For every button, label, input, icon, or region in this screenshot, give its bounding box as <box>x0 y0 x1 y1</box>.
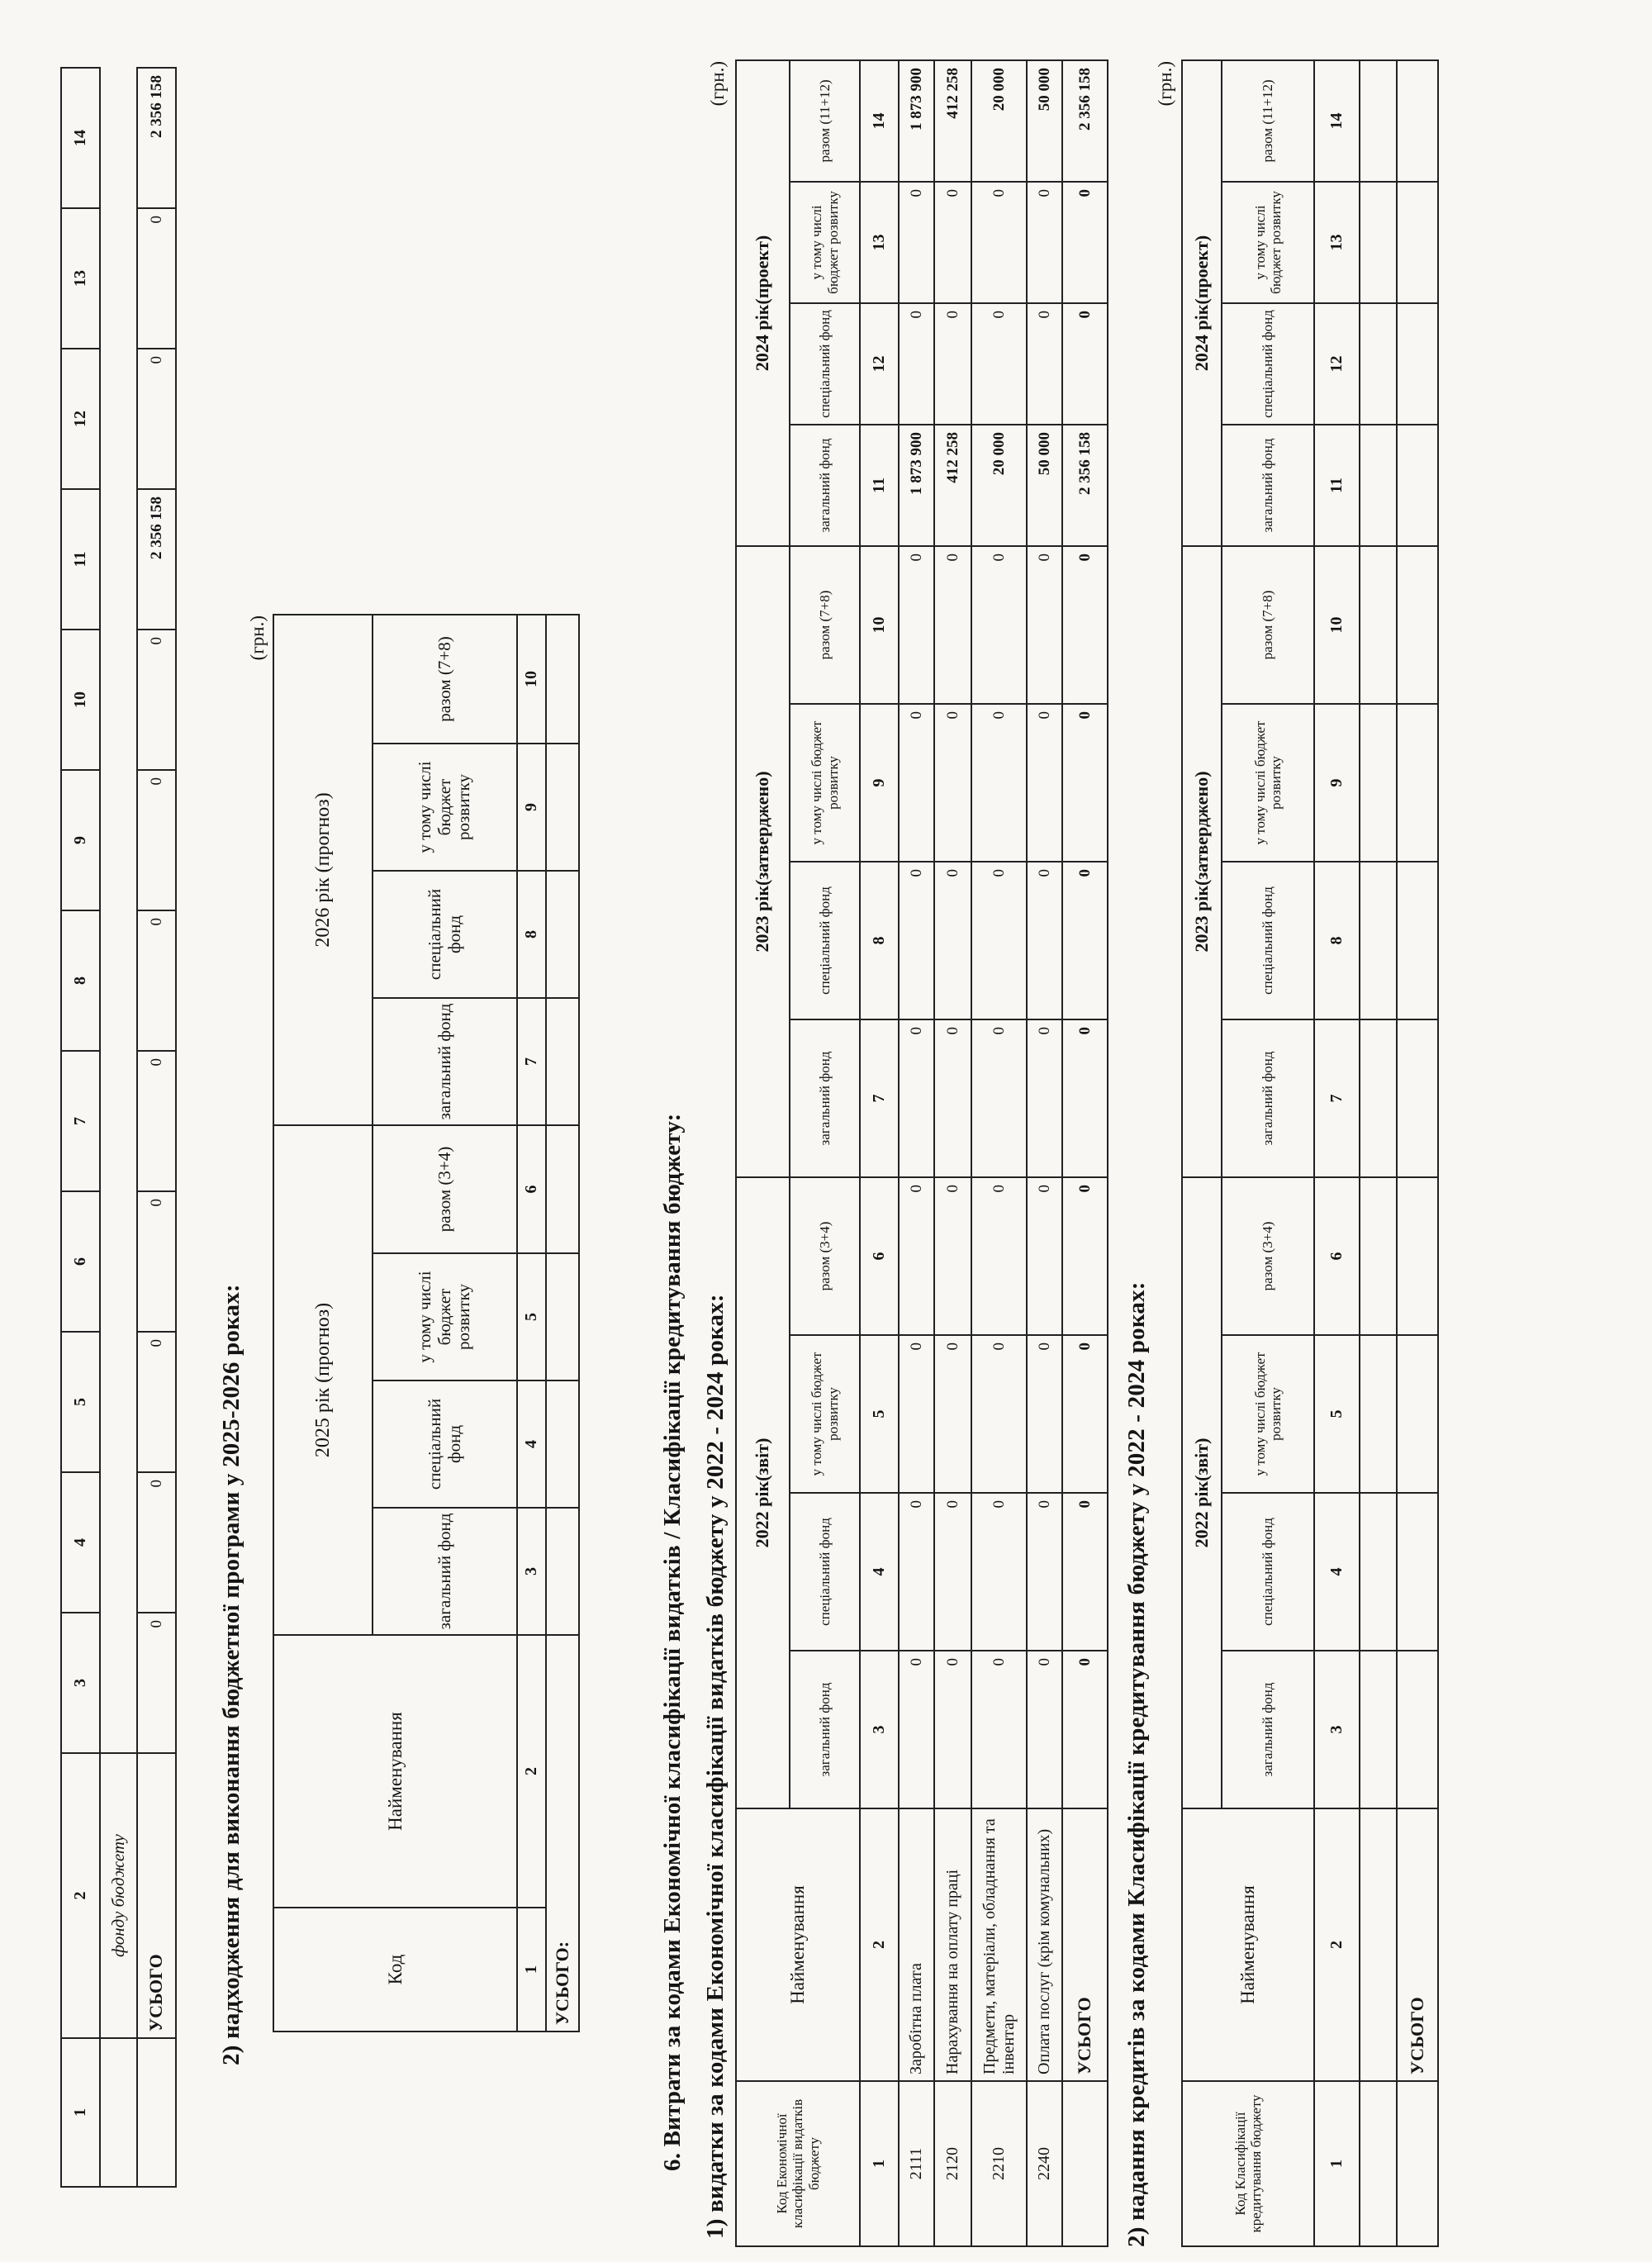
expenses-classification-table: Код Економічної класифікації видатків бю… <box>735 59 1108 2247</box>
table-cell: загальний фонд <box>790 425 860 546</box>
table-cell <box>100 1191 137 1332</box>
table-cell <box>100 1472 137 1613</box>
table-cell: 0 <box>971 182 1027 303</box>
table-cell <box>1397 1335 1438 1493</box>
table-cell: 7 <box>61 1051 100 1191</box>
table-cell <box>100 770 137 910</box>
table-cell <box>546 615 579 744</box>
table-cell: 10 <box>860 546 899 704</box>
table-cell: 2024 рік(проект) <box>1182 60 1222 546</box>
table-cell: 5 <box>517 1253 546 1380</box>
table-cell: 0 <box>934 1651 971 1808</box>
table-cell: 8 <box>517 871 546 998</box>
table-cell: 0 <box>899 303 934 425</box>
table-cell: разом (7+8) <box>790 546 860 704</box>
table-cell: 2026 рік (прогноз) <box>273 615 373 1125</box>
table-cell <box>1360 704 1397 862</box>
table-cell: загальний фонд <box>1222 1019 1314 1177</box>
table-cell: Найменування <box>273 1635 517 1908</box>
table-cell: 1 873 900 <box>899 425 934 546</box>
table-cell: спеціальний фонд <box>1222 1493 1314 1651</box>
table-cell: 0 <box>1027 704 1062 862</box>
table-cell: 2 <box>1314 1808 1360 2081</box>
table-cell: 3 <box>1314 1651 1360 1808</box>
table-cell: 0 <box>971 1177 1027 1335</box>
table-cell: 5 <box>1314 1335 1360 1493</box>
table-cell: 1 873 900 <box>899 60 934 182</box>
table-cell: 0 <box>971 862 1027 1019</box>
table-cell: 0 <box>899 1493 934 1651</box>
table-cell: 4 <box>61 1472 100 1613</box>
table-cell: 5 <box>860 1335 899 1493</box>
table-cell: 12 <box>860 303 899 425</box>
table-cell: 0 <box>1027 1651 1062 1808</box>
table-cell: 0 <box>137 1332 176 1472</box>
table-cell: 2 356 158 <box>1062 425 1108 546</box>
table-cell: 0 <box>934 1177 971 1335</box>
table-cell: 20 000 <box>971 60 1027 182</box>
table-cell: 11 <box>61 489 100 630</box>
table-cell: 20 000 <box>971 425 1027 546</box>
table-cell: у тому числі бюджет розвитку <box>1222 1335 1314 1493</box>
table-cell: 0 <box>137 910 176 1051</box>
table-cell: 1 <box>1314 2081 1360 2246</box>
table-cell: 2023 рік(затверджено) <box>1182 546 1222 1177</box>
table-cell <box>1397 862 1438 1019</box>
table-cell: 14 <box>860 60 899 182</box>
table-cell: 9 <box>61 770 100 910</box>
table-cell: загальний фонд <box>790 1651 860 1808</box>
table-cell: у тому числі бюджет розвитку <box>1222 182 1314 303</box>
table-cell: 0 <box>1062 1651 1108 1808</box>
table-cell: 412 258 <box>934 60 971 182</box>
table-cell: загальний фонд <box>373 1508 517 1635</box>
table-cell: 3 <box>61 1613 100 1753</box>
table-cell <box>1397 1493 1438 1651</box>
table-cell: 2022 рік(звіт) <box>736 1177 790 1808</box>
table-cell: 9 <box>860 704 899 862</box>
table-cell <box>546 1253 579 1380</box>
table-cell <box>1360 1493 1397 1651</box>
table-cell: спеціальний фонд <box>1222 303 1314 425</box>
table-cell: у тому числі бюджет розвитку <box>373 744 517 871</box>
table-cell: УСЬОГО <box>137 1753 176 2038</box>
table-cell: 0 <box>1062 182 1108 303</box>
table-cell: 12 <box>1314 303 1360 425</box>
scanned-budget-document-page: 1234567891011121314фонду бюджетуУСЬОГО00… <box>0 0 1652 2262</box>
table-cell: фонду бюджету <box>100 1753 137 2038</box>
table-cell <box>546 998 579 1125</box>
table-cell: 0 <box>1027 1019 1062 1177</box>
table-cell: 2 <box>860 1808 899 2081</box>
table-cell: 0 <box>1062 1335 1108 1493</box>
forecast-receipts-table-grid: КодНайменування2025 рік (прогноз)2026 рі… <box>273 614 580 2032</box>
table-cell: 0 <box>1062 1177 1108 1335</box>
table-cell <box>1397 303 1438 425</box>
table-cell <box>1397 2081 1438 2246</box>
table-cell: разом (3+4) <box>373 1125 517 1253</box>
table-cell <box>100 1332 137 1472</box>
table-cell: 0 <box>1027 546 1062 704</box>
currency-unit-label: (грн.) <box>707 61 729 309</box>
table-cell: Найменування <box>1182 1808 1314 2081</box>
table-cell: 0 <box>971 1019 1027 1177</box>
table-cell: 12 <box>61 349 100 489</box>
table-cell: 0 <box>934 704 971 862</box>
table-cell: спеціальний фонд <box>790 1493 860 1651</box>
table-cell: 0 <box>1027 862 1062 1019</box>
table-cell: 2111 <box>899 2081 934 2246</box>
table-cell <box>137 2038 176 2187</box>
table-cell: спеціальний фонд <box>1222 862 1314 1019</box>
table-cell <box>1397 1177 1438 1335</box>
table-cell: 0 <box>934 1335 971 1493</box>
table-cell: 6 <box>61 1191 100 1332</box>
table-cell: 10 <box>1314 546 1360 704</box>
table-cell <box>1397 182 1438 303</box>
table-cell: загальний фонд <box>1222 1651 1314 1808</box>
credits-classification-table-grid: Код Класифікації кредитування бюджетуНай… <box>1181 59 1439 2247</box>
table-cell: 2 356 158 <box>137 489 176 630</box>
landscape-canvas: 1234567891011121314фонду бюджетуУСЬОГО00… <box>0 0 1652 2262</box>
table-cell: УСЬОГО <box>1062 1808 1108 2081</box>
table-cell: спеціальний фонд <box>373 1380 517 1508</box>
table-cell: 0 <box>899 1177 934 1335</box>
table-cell: спеціальний фонд <box>373 871 517 998</box>
table-cell: 0 <box>1062 546 1108 704</box>
table-cell <box>1360 862 1397 1019</box>
fragment-totals-table: 1234567891011121314фонду бюджетуУСЬОГО00… <box>60 67 177 2188</box>
table-cell: 6 <box>517 1125 546 1253</box>
table-cell: 14 <box>61 68 100 208</box>
table-cell: 2 <box>517 1635 546 1908</box>
table-cell: 2240 <box>1027 2081 1062 2246</box>
table-cell: 0 <box>137 630 176 770</box>
table-cell: 7 <box>1314 1019 1360 1177</box>
table-cell: 8 <box>1314 862 1360 1019</box>
table-cell: у тому числі бюджет розвитку <box>790 704 860 862</box>
table-cell: 11 <box>1314 425 1360 546</box>
table-cell <box>1360 1808 1397 2081</box>
table-cell: 4 <box>517 1380 546 1508</box>
table-cell: у тому числі бюджет розвитку <box>373 1253 517 1380</box>
table-cell: 412 258 <box>934 425 971 546</box>
table-cell <box>1397 60 1438 182</box>
table-cell: 0 <box>899 862 934 1019</box>
fragment-totals-table-grid: 1234567891011121314фонду бюджетуУСЬОГО00… <box>60 67 177 2188</box>
table-cell: у тому числі бюджет розвитку <box>790 1335 860 1493</box>
currency-unit-label: (грн.) <box>247 615 268 863</box>
table-cell: 0 <box>934 303 971 425</box>
table-cell: 0 <box>1062 1493 1108 1651</box>
table-cell: Код <box>273 1908 517 2032</box>
table-cell: 0 <box>1062 1019 1108 1177</box>
table-cell: Нарахування на оплату праці <box>934 1808 971 2081</box>
table-cell: 2210 <box>971 2081 1027 2246</box>
table-cell <box>1062 2081 1108 2246</box>
table-cell: 2 356 158 <box>137 68 176 208</box>
heading-receipts-2025-2026: 2) надходження для виконання бюджетної п… <box>218 1284 245 2065</box>
table-cell: 1 <box>61 2038 100 2187</box>
table-cell: 3 <box>860 1651 899 1808</box>
table-cell: 10 <box>517 615 546 744</box>
table-cell <box>100 1051 137 1191</box>
table-cell: 10 <box>61 630 100 770</box>
table-cell: Заробітна плата <box>899 1808 934 2081</box>
table-cell: 0 <box>137 349 176 489</box>
table-cell: 0 <box>899 704 934 862</box>
table-cell: УСЬОГО: <box>546 1635 579 2032</box>
table-cell: 13 <box>860 182 899 303</box>
table-cell: у тому числі бюджет розвитку <box>1222 704 1314 862</box>
table-cell: спеціальний фонд <box>790 862 860 1019</box>
table-cell: 0 <box>1027 1335 1062 1493</box>
table-cell: 0 <box>137 1051 176 1191</box>
table-cell <box>1360 546 1397 704</box>
heading-credits-subsection: 2) надання кредитів за кодами Класифікац… <box>1123 1281 1151 2247</box>
table-cell: 0 <box>1027 1177 1062 1335</box>
table-cell: 0 <box>137 770 176 910</box>
table-cell: 8 <box>61 910 100 1051</box>
table-cell <box>100 630 137 770</box>
table-cell: загальний фонд <box>1222 425 1314 546</box>
table-cell: 11 <box>860 425 899 546</box>
table-cell: 0 <box>934 1019 971 1177</box>
table-cell: 2120 <box>934 2081 971 2246</box>
table-cell: 0 <box>137 1613 176 1753</box>
table-cell: 0 <box>899 546 934 704</box>
table-cell: 0 <box>1062 303 1108 425</box>
table-cell: 0 <box>1062 862 1108 1019</box>
table-cell <box>546 1508 579 1635</box>
forecast-receipts-table: КодНайменування2025 рік (прогноз)2026 рі… <box>273 614 580 2032</box>
table-cell: УСЬОГО <box>1397 1808 1438 2081</box>
table-cell <box>100 489 137 630</box>
table-cell: 6 <box>1314 1177 1360 1335</box>
table-cell <box>1397 1651 1438 1808</box>
table-cell: 0 <box>934 546 971 704</box>
table-cell <box>546 1380 579 1508</box>
table-cell: 3 <box>517 1508 546 1635</box>
table-cell <box>1360 1335 1397 1493</box>
table-cell <box>546 1125 579 1253</box>
table-cell: 0 <box>934 862 971 1019</box>
table-cell: 0 <box>934 1493 971 1651</box>
table-cell: 0 <box>1027 1493 1062 1651</box>
table-cell <box>1360 182 1397 303</box>
table-cell: 0 <box>899 1335 934 1493</box>
heading-expenses-subsection: 1) видатки за кодами Економічної класифі… <box>702 1294 729 2239</box>
table-cell <box>1360 1651 1397 1808</box>
table-cell: 0 <box>899 182 934 303</box>
table-cell: Код Економічної класифікації видатків бю… <box>736 2081 860 2246</box>
table-cell: 0 <box>1027 182 1062 303</box>
table-cell: 4 <box>1314 1493 1360 1651</box>
table-cell: 2023 рік(затверджено) <box>736 546 790 1177</box>
table-cell: разом (7+8) <box>1222 546 1314 704</box>
table-cell <box>100 2038 137 2187</box>
table-cell: 0 <box>971 1335 1027 1493</box>
table-cell <box>1397 546 1438 704</box>
table-cell: загальний фонд <box>373 998 517 1125</box>
table-cell <box>1360 1019 1397 1177</box>
table-cell <box>1360 2081 1397 2246</box>
table-cell: 0 <box>899 1019 934 1177</box>
table-cell: 0 <box>934 182 971 303</box>
table-cell <box>1360 303 1397 425</box>
table-cell: 8 <box>860 862 899 1019</box>
table-cell: Найменування <box>736 1808 860 2081</box>
table-cell <box>1397 1019 1438 1177</box>
table-cell: 1 <box>860 2081 899 2246</box>
table-cell <box>100 910 137 1051</box>
table-cell: разом (7+8) <box>373 615 517 744</box>
table-cell: у тому числі бюджет розвитку <box>790 182 860 303</box>
table-cell: 0 <box>971 1651 1027 1808</box>
table-cell: 7 <box>517 998 546 1125</box>
table-cell: разом (3+4) <box>1222 1177 1314 1335</box>
table-cell: 0 <box>137 208 176 349</box>
table-cell: Оплата послуг (крім комунальних) <box>1027 1808 1062 2081</box>
credits-classification-table: Код Класифікації кредитування бюджетуНай… <box>1181 59 1439 2247</box>
table-cell: 0 <box>1062 704 1108 862</box>
expenses-classification-table-grid: Код Економічної класифікації видатків бю… <box>735 59 1108 2247</box>
table-cell: 2022 рік(звіт) <box>1182 1177 1222 1808</box>
table-cell: 2 356 158 <box>1062 60 1108 182</box>
table-cell: 6 <box>860 1177 899 1335</box>
table-cell <box>546 744 579 871</box>
table-cell: 50 000 <box>1027 425 1062 546</box>
table-cell <box>1360 60 1397 182</box>
table-cell: 13 <box>1314 182 1360 303</box>
table-cell <box>1397 704 1438 862</box>
table-cell: 9 <box>1314 704 1360 862</box>
table-cell: 2024 рік(проект) <box>736 60 790 546</box>
table-cell: 0 <box>971 546 1027 704</box>
table-cell <box>1360 425 1397 546</box>
table-cell <box>100 68 137 208</box>
table-cell: 0 <box>137 1191 176 1332</box>
table-cell: 4 <box>860 1493 899 1651</box>
table-cell: 7 <box>860 1019 899 1177</box>
table-cell <box>100 208 137 349</box>
table-cell: 2 <box>61 1753 100 2038</box>
table-cell: 5 <box>61 1332 100 1472</box>
table-cell: 0 <box>971 303 1027 425</box>
table-cell: 0 <box>1027 303 1062 425</box>
table-cell: 0 <box>137 1472 176 1613</box>
currency-unit-label: (грн.) <box>1155 61 1176 309</box>
table-cell: 1 <box>517 1908 546 2032</box>
table-cell: Предмети, матеріали, обладнання та інвен… <box>971 1808 1027 2081</box>
table-cell <box>100 1613 137 1753</box>
table-cell: 50 000 <box>1027 60 1062 182</box>
table-cell <box>546 871 579 998</box>
table-cell: разом (11+12) <box>790 60 860 182</box>
table-cell: спеціальний фонд <box>790 303 860 425</box>
heading-section-6: 6. Витрати за кодами Економічної класифі… <box>659 1113 686 2171</box>
table-cell: разом (11+12) <box>1222 60 1314 182</box>
table-cell: разом (3+4) <box>790 1177 860 1335</box>
table-cell <box>1360 1177 1397 1335</box>
table-cell: 0 <box>971 1493 1027 1651</box>
table-cell: загальний фонд <box>790 1019 860 1177</box>
table-cell: 2025 рік (прогноз) <box>273 1125 373 1635</box>
table-cell: 0 <box>899 1651 934 1808</box>
table-cell: Код Класифікації кредитування бюджету <box>1182 2081 1314 2246</box>
table-cell <box>100 349 137 489</box>
table-cell <box>1397 425 1438 546</box>
table-cell: 9 <box>517 744 546 871</box>
table-cell: 13 <box>61 208 100 349</box>
table-cell: 14 <box>1314 60 1360 182</box>
table-cell: 0 <box>971 704 1027 862</box>
